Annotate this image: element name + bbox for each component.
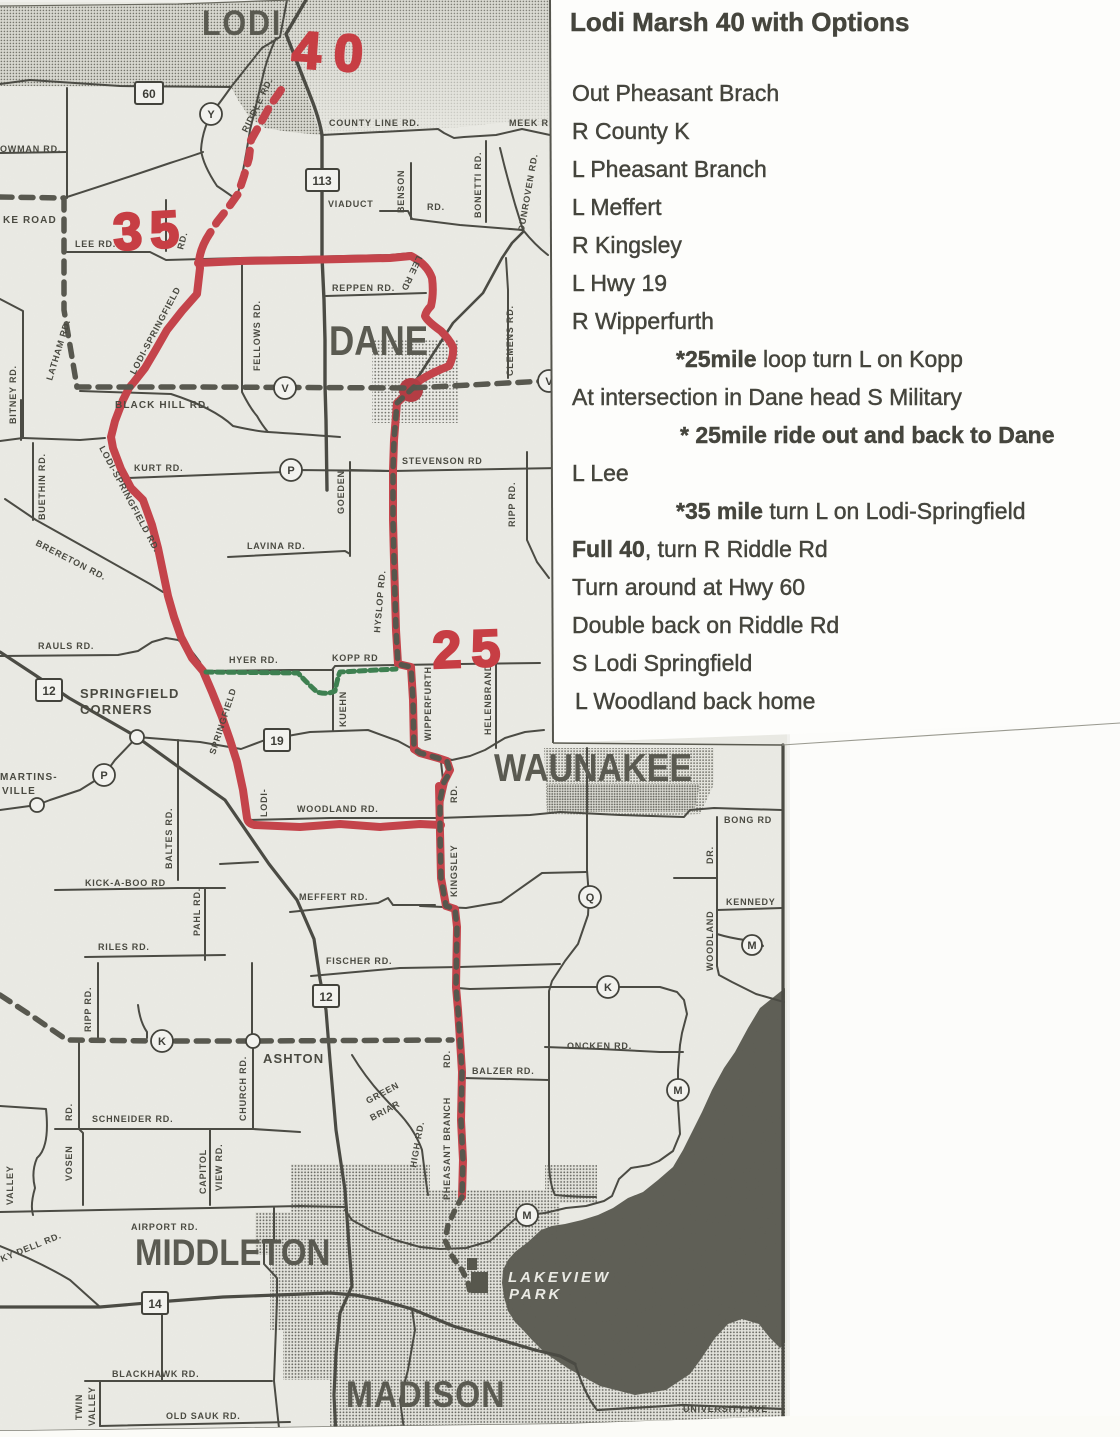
svg-text:R Wipperfurth: R Wipperfurth xyxy=(572,308,714,334)
svg-text:Double back on Riddle Rd: Double back on Riddle Rd xyxy=(572,612,839,638)
svg-text:Out Pheasant Brach: Out Pheasant Brach xyxy=(572,80,779,106)
svg-text:R Kingsley: R Kingsley xyxy=(572,232,682,258)
svg-text:L Hwy 19: L Hwy 19 xyxy=(572,270,667,296)
svg-text:Turn around at Hwy 60: Turn around at Hwy 60 xyxy=(572,574,805,600)
svg-text:R County K: R County K xyxy=(572,118,690,144)
svg-text:L Woodland back home: L Woodland back home xyxy=(575,688,815,714)
svg-text:*25mile loop turn L on Kopp: *25mile loop turn L on Kopp xyxy=(676,346,963,372)
svg-text:* 25mile ride out and back to: * 25mile ride out and back to Dane xyxy=(680,422,1055,448)
svg-text:S Lodi Springfield: S Lodi Springfield xyxy=(572,650,752,676)
svg-text:At intersection in Dane head S: At intersection in Dane head S Military xyxy=(572,384,962,410)
svg-text:*35 mile turn L on Lodi-Spring: *35 mile turn L on Lodi-Springfield xyxy=(676,498,1026,524)
svg-text:Lodi Marsh 40 with Options: Lodi Marsh 40 with Options xyxy=(570,7,909,37)
svg-text:Full 40, turn R Riddle Rd: Full 40, turn R Riddle Rd xyxy=(572,536,828,562)
svg-text:L Lee: L Lee xyxy=(572,460,629,486)
svg-text:L Meffert: L Meffert xyxy=(572,194,662,220)
svg-text:L Pheasant Branch: L Pheasant Branch xyxy=(572,156,767,182)
